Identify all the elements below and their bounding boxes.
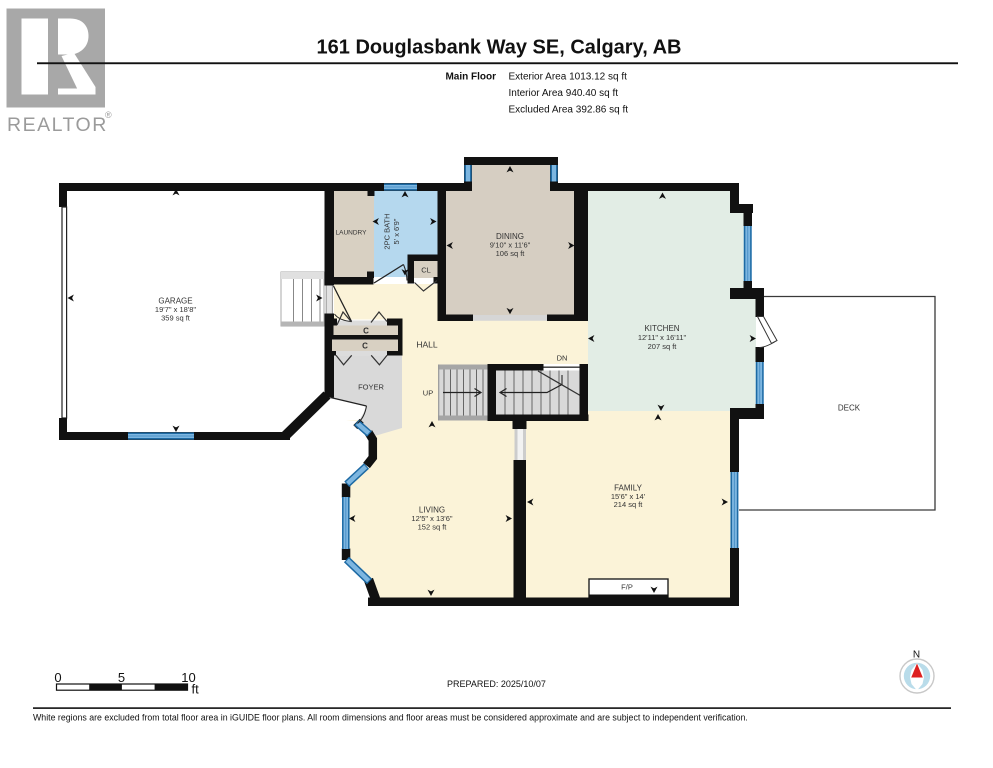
svg-text:C: C (362, 342, 368, 351)
svg-text:REALTOR: REALTOR (7, 114, 108, 136)
svg-text:LAUNDRY: LAUNDRY (336, 230, 368, 237)
svg-text:Interior Area 940.40 sq ft: Interior Area 940.40 sq ft (509, 88, 619, 99)
svg-text:C: C (363, 327, 369, 336)
svg-text:2PC BATH: 2PC BATH (383, 213, 392, 249)
svg-text:®: ® (105, 110, 112, 120)
svg-text:Exterior Area 1013.12 sq ft: Exterior Area 1013.12 sq ft (509, 72, 628, 83)
svg-text:White regions are excluded fro: White regions are excluded from total fl… (33, 713, 748, 723)
svg-text:106 sq ft: 106 sq ft (496, 249, 526, 258)
svg-text:Excluded Area 392.86 sq ft: Excluded Area 392.86 sq ft (509, 105, 629, 116)
svg-text:FOYER: FOYER (358, 383, 384, 392)
svg-text:207 sq ft: 207 sq ft (648, 342, 678, 351)
svg-text:0: 0 (54, 670, 61, 685)
svg-text:DN: DN (557, 354, 568, 363)
svg-text:KITCHEN: KITCHEN (644, 324, 679, 333)
svg-text:359 sq ft: 359 sq ft (161, 314, 191, 323)
svg-text:161 Douglasbank Way SE, Calgar: 161 Douglasbank Way SE, Calgary, AB (317, 37, 682, 59)
svg-text:PREPARED: 2025/10/07: PREPARED: 2025/10/07 (447, 679, 546, 689)
svg-text:5: 5 (118, 670, 125, 685)
svg-text:ft: ft (192, 682, 200, 697)
svg-text:HALL: HALL (416, 340, 438, 350)
svg-text:12'11" x 16'11": 12'11" x 16'11" (638, 333, 687, 342)
svg-text:Main Floor: Main Floor (445, 72, 496, 83)
svg-text:UP: UP (423, 389, 433, 398)
svg-text:DECK: DECK (838, 404, 861, 413)
svg-text:CL: CL (421, 266, 431, 275)
svg-text:5' x 6'9": 5' x 6'9" (392, 218, 401, 244)
svg-text:152 sq ft: 152 sq ft (418, 523, 448, 532)
svg-text:214 sq ft: 214 sq ft (614, 500, 644, 509)
svg-text:F/P: F/P (621, 583, 633, 592)
